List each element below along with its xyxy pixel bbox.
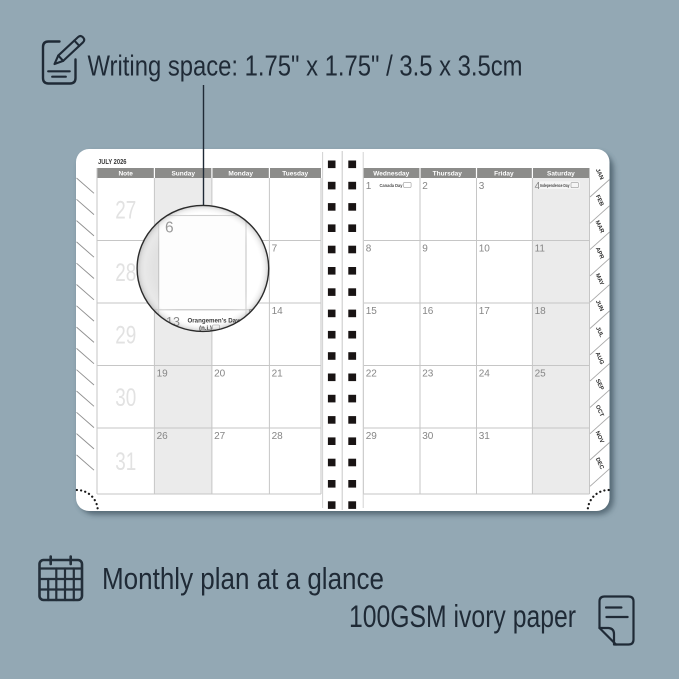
svg-text:Writing space: 1.75" x 1.75" /: Writing space: 1.75" x 1.75" / 3.5 x 3.5… [88, 51, 523, 83]
svg-text:18: 18 [535, 306, 547, 317]
svg-text:27: 27 [214, 431, 226, 442]
svg-text:9: 9 [422, 244, 428, 255]
svg-text:21: 21 [272, 369, 284, 380]
svg-text:15: 15 [366, 306, 378, 317]
svg-text:27: 27 [115, 197, 136, 225]
svg-text:31: 31 [479, 431, 491, 442]
svg-text:10: 10 [479, 244, 491, 255]
svg-text:29: 29 [366, 431, 378, 442]
svg-text:25: 25 [535, 369, 547, 380]
svg-text:16: 16 [422, 306, 434, 317]
svg-text:17: 17 [479, 306, 491, 317]
svg-text:Wednesday: Wednesday [373, 171, 409, 178]
svg-text:Thursday: Thursday [433, 171, 463, 178]
svg-text:30: 30 [422, 431, 434, 442]
svg-text:22: 22 [366, 369, 378, 380]
svg-text:7: 7 [272, 244, 278, 255]
svg-text:6: 6 [165, 220, 174, 237]
svg-text:11: 11 [535, 244, 546, 255]
svg-text:JULY 2026: JULY 2026 [98, 159, 127, 166]
svg-text:Note: Note [118, 171, 133, 178]
svg-text:20: 20 [214, 369, 226, 380]
svg-text:26: 26 [157, 431, 169, 442]
svg-text:31: 31 [115, 448, 136, 476]
svg-text:30: 30 [115, 384, 136, 412]
svg-text:Monthly plan at a glance: Monthly plan at a glance [102, 561, 384, 596]
svg-text:29: 29 [115, 322, 136, 350]
svg-text:Canada Day: Canada Day [380, 183, 403, 188]
svg-text:100GSM ivory paper: 100GSM ivory paper [349, 598, 576, 634]
svg-text:14: 14 [272, 306, 284, 317]
svg-text:Friday: Friday [494, 171, 514, 178]
svg-text:1: 1 [366, 181, 372, 192]
svg-text:19: 19 [157, 369, 169, 380]
svg-text:28: 28 [272, 431, 284, 442]
svg-text:2: 2 [422, 181, 428, 192]
svg-text:23: 23 [422, 369, 434, 380]
svg-text:Saturday: Saturday [547, 171, 575, 178]
svg-text:Sunday: Sunday [171, 171, 195, 178]
svg-text:Tuesday: Tuesday [282, 171, 308, 178]
svg-text:Orangemen's Day: Orangemen's Day [188, 318, 241, 325]
svg-text:3: 3 [479, 181, 485, 192]
svg-text:Monday: Monday [228, 171, 253, 178]
svg-text:8: 8 [366, 244, 372, 255]
svg-text:24: 24 [479, 369, 491, 380]
svg-text:28: 28 [115, 259, 136, 287]
svg-text:Independence Day: Independence Day [540, 183, 570, 188]
